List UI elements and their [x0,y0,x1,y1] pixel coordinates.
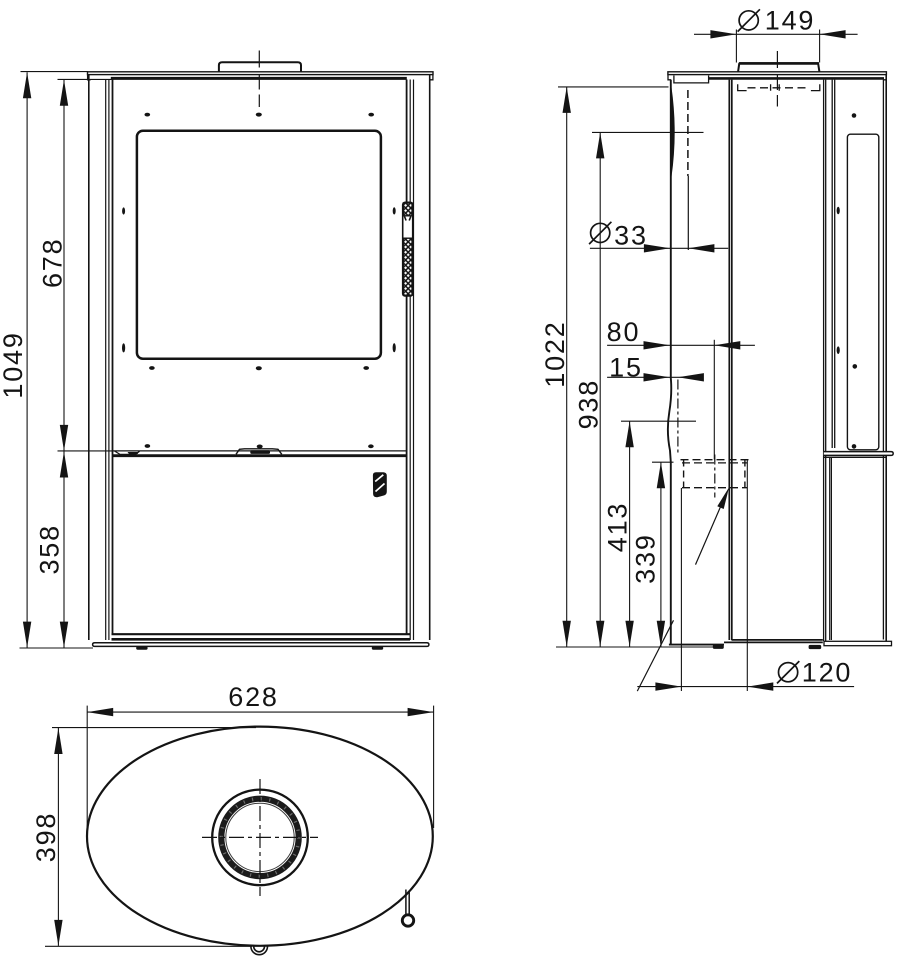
svg-text:339: 339 [630,533,660,583]
svg-text:33: 33 [614,220,648,250]
svg-text:80: 80 [607,317,641,347]
svg-text:398: 398 [31,812,61,862]
svg-text:120: 120 [802,657,852,687]
svg-text:938: 938 [574,379,604,429]
svg-text:1022: 1022 [540,320,570,387]
svg-text:358: 358 [35,524,65,574]
svg-text:628: 628 [228,682,278,712]
svg-text:413: 413 [603,502,633,552]
svg-text:678: 678 [37,238,67,288]
svg-text:149: 149 [765,5,815,35]
svg-text:15: 15 [609,353,643,383]
svg-text:1049: 1049 [0,331,28,398]
